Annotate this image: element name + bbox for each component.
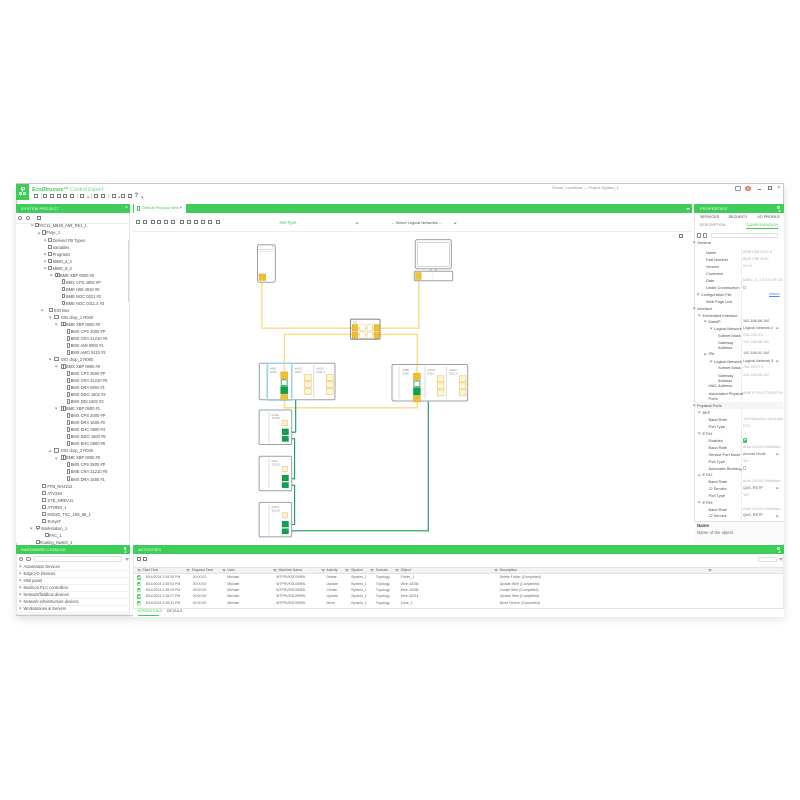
svg-text:31210: 31210 [272,462,280,466]
svg-text:0311.4: 0311.4 [449,371,458,375]
svg-text:0321: 0321 [295,370,302,374]
svg-text:31210: 31210 [272,416,280,420]
svg-text:0321: 0321 [428,371,435,375]
svg-text:31210: 31210 [272,509,280,513]
svg-text:2040: 2040 [403,371,410,375]
svg-text:0311.4: 0311.4 [316,370,325,374]
svg-text:242: 242 [353,321,358,325]
svg-text:4040: 4040 [270,370,277,374]
